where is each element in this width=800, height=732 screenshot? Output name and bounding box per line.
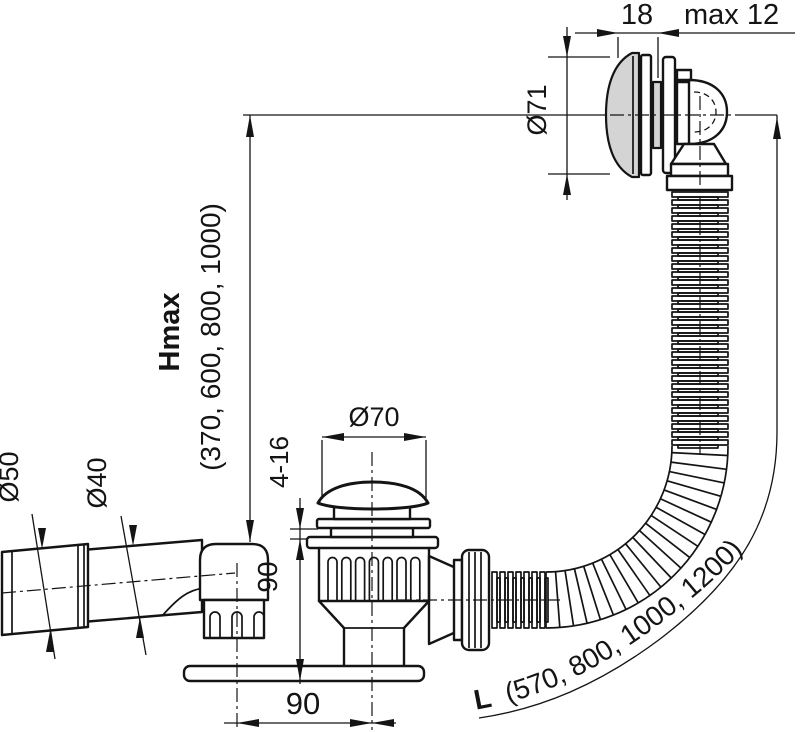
dim-max12-label: max 12 [684,0,779,31]
dim-18-label: 18 [621,0,653,31]
dim-dia70-label: Ø70 [348,402,399,432]
drain-bottom-flange [184,666,424,681]
overflow-fitting [606,53,732,190]
dim-4-16-label: 4-16 [264,436,294,488]
technical-drawing: 18 max 12 Ø71 Hmax (370, 600, 800, 1000)… [0,0,800,732]
drain-basket-slots [328,558,420,602]
pipe-40 [82,540,202,622]
dim-overflow-cap-diameter: Ø71 [522,27,610,200]
dim-dia71-label: Ø71 [522,84,552,135]
drain-upper-disc [317,519,430,528]
dim-90-horizontal-label: 90 [286,686,320,721]
corrugated-hose [492,192,728,628]
hose-bend-inner [546,446,672,572]
dim-overflow-width: 18 max 12 [575,0,795,78]
dim-dia50-label: Ø50 [0,451,24,502]
dim-dia40-label: Ø40 [82,457,112,508]
drain-cap [318,482,428,509]
drawing-canvas: 18 max 12 Ø71 Hmax (370, 600, 800, 1000)… [0,0,800,732]
dim-hmax-label: Hmax [154,293,186,372]
overflow-dome [689,80,727,144]
outlet-pipe [2,540,202,635]
dim-hmax-values: (370, 600, 800, 1000) [195,203,226,471]
dim-90-vertical-label: 90 [252,561,283,592]
hose-bend-ribs [546,453,728,628]
dim-outlet-offset: 90 [224,686,396,727]
